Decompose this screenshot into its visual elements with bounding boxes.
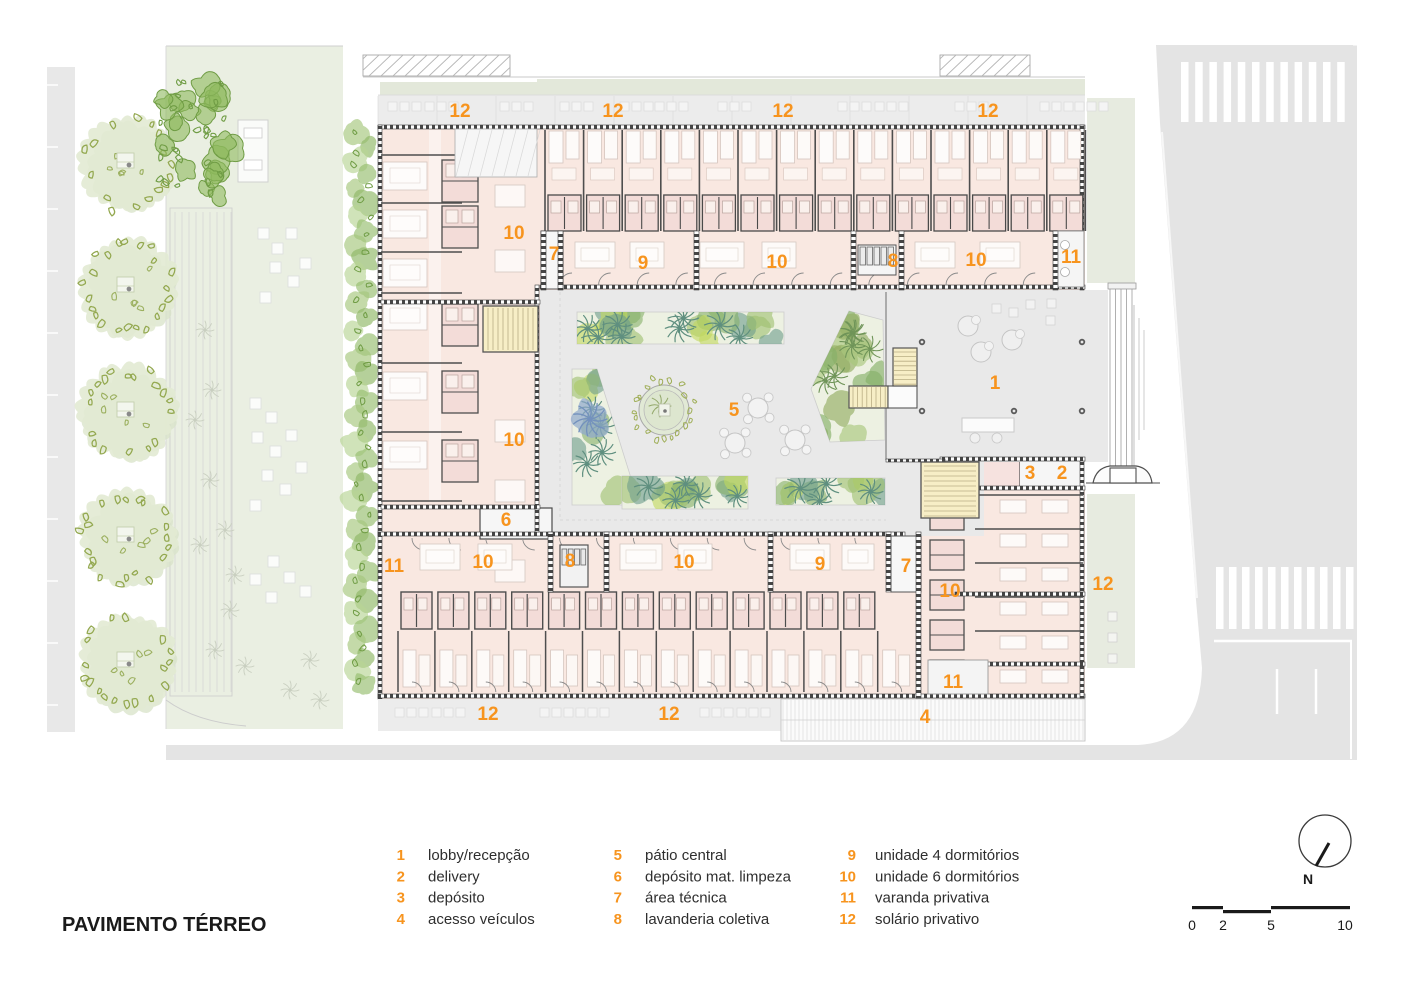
svg-text:unidade 4 dormitórios: unidade 4 dormitórios — [875, 847, 1019, 864]
svg-text:delivery: delivery — [428, 868, 480, 885]
svg-text:unidade 6 dormitórios: unidade 6 dormitórios — [875, 868, 1019, 885]
svg-text:PAVIMENTO TÉRREO: PAVIMENTO TÉRREO — [62, 913, 266, 936]
svg-text:6: 6 — [501, 510, 512, 531]
svg-text:12: 12 — [772, 101, 793, 122]
svg-text:8: 8 — [614, 911, 622, 928]
svg-text:9: 9 — [815, 554, 826, 575]
svg-text:5: 5 — [614, 847, 622, 864]
svg-text:pátio central: pátio central — [645, 847, 727, 864]
svg-text:4: 4 — [397, 911, 406, 928]
svg-text:10: 10 — [1337, 917, 1353, 933]
svg-text:N: N — [1303, 871, 1313, 887]
svg-text:2: 2 — [1057, 463, 1068, 484]
svg-text:área técnica: área técnica — [645, 890, 727, 907]
svg-text:10: 10 — [503, 430, 524, 451]
svg-text:5: 5 — [1267, 917, 1275, 933]
svg-text:3: 3 — [1025, 463, 1036, 484]
svg-text:11: 11 — [384, 556, 405, 577]
svg-text:2: 2 — [1219, 917, 1227, 933]
svg-text:11: 11 — [943, 672, 964, 693]
svg-text:acesso veículos: acesso veículos — [428, 911, 535, 928]
svg-text:3: 3 — [397, 890, 405, 907]
svg-text:4: 4 — [920, 707, 931, 728]
svg-text:11: 11 — [840, 890, 856, 907]
svg-text:lavanderia coletiva: lavanderia coletiva — [645, 911, 770, 928]
svg-text:10: 10 — [766, 252, 787, 273]
svg-text:solário privativo: solário privativo — [875, 911, 979, 928]
svg-text:12: 12 — [449, 101, 470, 122]
svg-text:10: 10 — [503, 223, 524, 244]
svg-text:8: 8 — [888, 251, 899, 272]
svg-text:7: 7 — [901, 556, 912, 577]
svg-text:1: 1 — [990, 373, 1001, 394]
svg-text:12: 12 — [1092, 574, 1113, 595]
svg-text:depósito: depósito — [428, 890, 485, 907]
svg-text:12: 12 — [839, 911, 856, 928]
svg-text:7: 7 — [549, 244, 560, 265]
svg-text:5: 5 — [729, 400, 740, 421]
svg-text:varanda privativa: varanda privativa — [875, 890, 990, 907]
svg-text:2: 2 — [397, 868, 405, 885]
svg-text:12: 12 — [658, 704, 679, 725]
svg-text:6: 6 — [614, 868, 622, 885]
svg-text:12: 12 — [977, 101, 998, 122]
svg-text:8: 8 — [565, 551, 576, 572]
svg-text:10: 10 — [965, 250, 986, 271]
svg-text:12: 12 — [477, 704, 498, 725]
svg-text:12: 12 — [602, 101, 623, 122]
svg-text:7: 7 — [614, 890, 622, 907]
svg-text:0: 0 — [1188, 917, 1196, 933]
svg-text:1: 1 — [397, 847, 405, 864]
svg-text:11: 11 — [1061, 247, 1082, 268]
svg-text:10: 10 — [939, 581, 960, 602]
svg-text:10: 10 — [839, 868, 856, 885]
svg-text:9: 9 — [848, 847, 856, 864]
svg-text:depósito mat. limpeza: depósito mat. limpeza — [645, 868, 792, 885]
svg-text:lobby/recepção: lobby/recepção — [428, 847, 530, 864]
svg-text:10: 10 — [472, 552, 493, 573]
svg-text:10: 10 — [673, 552, 694, 573]
svg-text:9: 9 — [638, 253, 649, 274]
